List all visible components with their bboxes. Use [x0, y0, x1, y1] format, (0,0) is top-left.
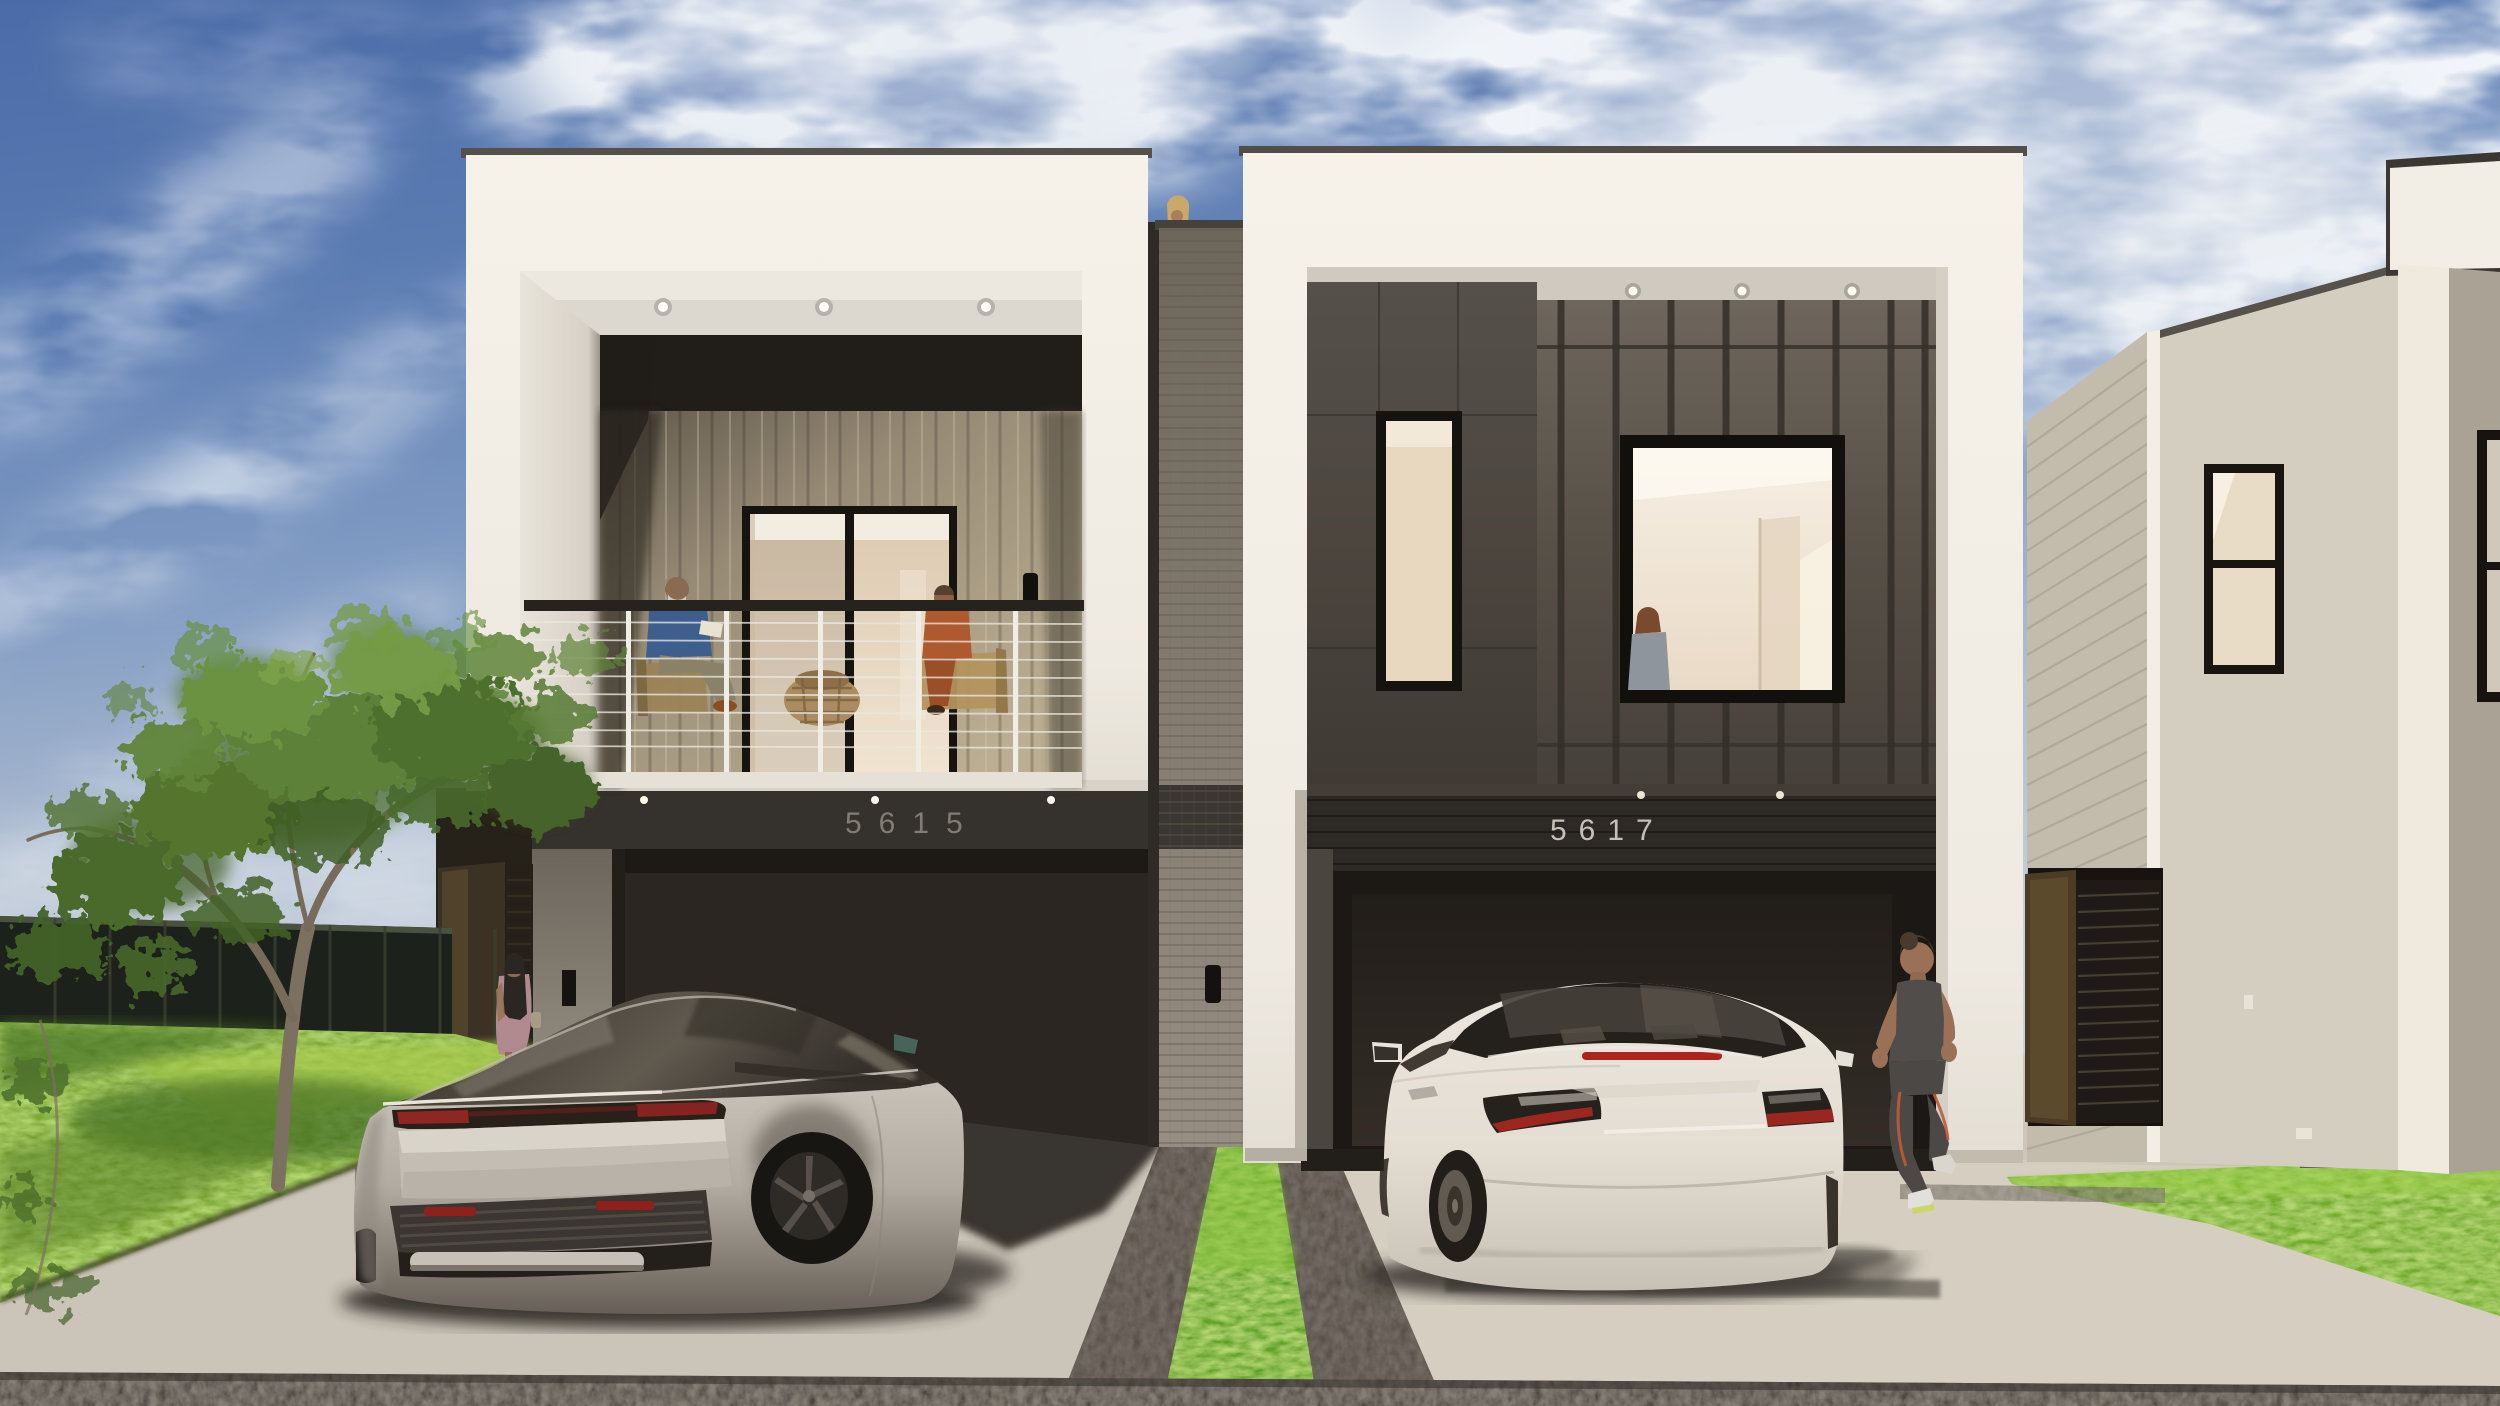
svg-text:5617: 5617 — [1550, 814, 1665, 847]
svg-text:5615: 5615 — [845, 807, 980, 840]
